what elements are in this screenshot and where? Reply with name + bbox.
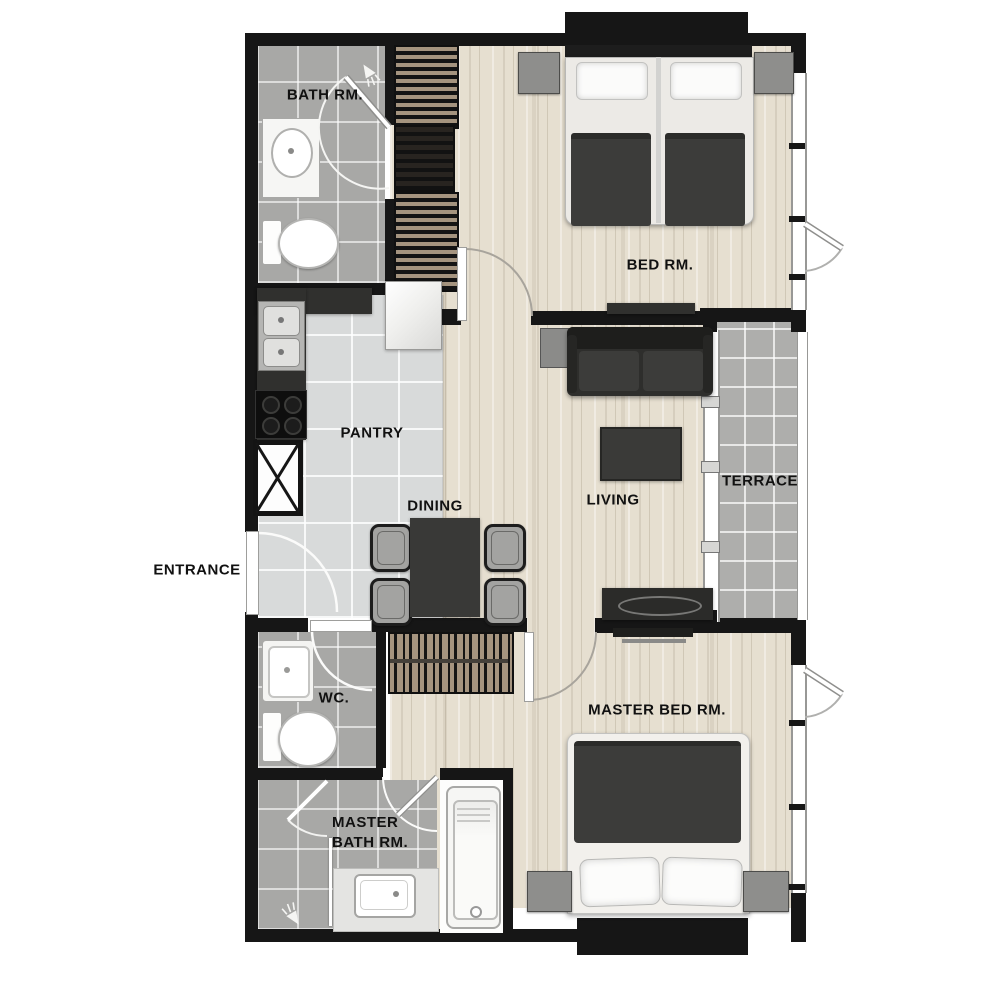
sofa	[567, 327, 713, 396]
wardrobe-lower	[394, 192, 459, 292]
stove-burner	[284, 396, 302, 414]
room-label-terrace: TERRACE	[722, 473, 798, 490]
stove-burner	[262, 396, 280, 414]
slider-joint	[701, 461, 720, 473]
sink-drain	[278, 317, 284, 323]
vanity-sink-inner	[360, 880, 408, 910]
sofa-armrest	[567, 335, 577, 393]
stove-burner	[284, 417, 302, 435]
dining-chair	[484, 578, 526, 626]
slider-joint	[701, 541, 720, 553]
nightstand	[754, 52, 794, 94]
room-label-wc: WC.	[319, 690, 350, 707]
master-pillow	[579, 857, 661, 908]
stove-burner	[262, 417, 280, 435]
wardrobe-rail	[390, 659, 508, 663]
wall-bath-right-upper	[385, 45, 394, 125]
sofa-cushion	[579, 351, 639, 391]
master-window	[791, 665, 807, 893]
nightstand	[518, 52, 560, 94]
bathtub-drain	[470, 906, 482, 918]
bathtub-step-line	[457, 814, 490, 816]
window-tick	[789, 274, 805, 280]
wall-bottom-right-corner	[791, 893, 806, 942]
dining-chair	[484, 524, 526, 572]
bathtub-step-line	[457, 808, 490, 810]
floor-plan: BATH RM. BED RM. PANTRY DINING LIVING TE…	[0, 0, 1000, 1000]
master-pillow	[661, 857, 743, 908]
living-tv	[618, 596, 702, 616]
bed-headboard	[565, 45, 752, 57]
coffee-table	[600, 427, 682, 481]
room-label-bed: BED RM.	[627, 257, 694, 274]
window-tick	[789, 804, 805, 810]
room-label-dining: DINING	[407, 498, 463, 515]
room-label-master-bath-line2: BATH RM.	[332, 833, 408, 853]
twin-bed-divider	[656, 57, 661, 223]
room-label-bath: BATH RM.	[287, 87, 363, 104]
dining-chair	[370, 578, 412, 626]
sink-drain	[278, 349, 284, 355]
bathtub-step-line	[457, 820, 490, 822]
sofa-armrest	[703, 335, 713, 393]
wall-bottom-block	[577, 918, 748, 955]
master-duvet	[574, 741, 741, 843]
window-tick	[789, 884, 805, 890]
room-label-pantry: PANTRY	[341, 425, 404, 442]
bath-basin-drain	[288, 148, 294, 154]
terrace-railing	[797, 332, 808, 620]
room-label-entrance: ENTRANCE	[153, 562, 240, 579]
duvet	[571, 133, 651, 226]
master-door-leaf	[524, 632, 534, 702]
room-label-master-bath: MASTER BATH RM.	[332, 813, 408, 853]
window-tick	[789, 216, 805, 222]
bathtub	[446, 786, 501, 929]
bathtub-inner	[453, 800, 498, 920]
wc-toilet-bowl	[278, 711, 338, 767]
terrace-floor	[715, 322, 797, 620]
side-table	[540, 328, 570, 368]
sofa-cushion	[643, 351, 703, 391]
room-label-living: LIVING	[586, 492, 639, 509]
bedroom-door-leaf	[457, 247, 467, 321]
dining-table	[410, 518, 480, 617]
slider-joint	[701, 396, 720, 408]
duvet	[665, 133, 745, 226]
entrance-door-leaf	[246, 531, 259, 615]
wall-mid-a	[245, 618, 308, 632]
sofa-back	[567, 327, 713, 349]
pillow	[576, 62, 648, 100]
bedroom-tv-console	[607, 303, 695, 314]
bath-toilet-bowl	[278, 218, 339, 269]
window-tick	[789, 143, 805, 149]
wc-door-leaf	[310, 620, 372, 632]
pillow	[670, 62, 742, 100]
balcony-door-swing	[805, 670, 842, 717]
vanity-drain	[393, 891, 399, 897]
master-wardrobe	[388, 632, 514, 694]
nightstand	[527, 871, 572, 912]
wardrobe-middle-dark	[394, 125, 455, 192]
room-label-master-bed: MASTER BED RM.	[588, 702, 726, 719]
dining-chair	[370, 524, 412, 572]
utility-shaft-box	[253, 440, 303, 516]
wall-wc-right	[376, 632, 386, 768]
wc-sink-drain	[284, 667, 290, 673]
wardrobe-upper	[394, 45, 459, 129]
refrigerator	[385, 281, 442, 350]
window-tick	[789, 720, 805, 726]
master-tv	[613, 628, 693, 637]
balcony-door-swing	[805, 224, 842, 271]
wall-tub-niche-right	[503, 768, 513, 933]
nightstand	[743, 871, 789, 912]
wall-top-block	[565, 12, 748, 45]
master-tv-shelf	[622, 639, 686, 643]
room-label-master-bath-line1: MASTER	[332, 813, 408, 833]
wall-masterbath-top	[245, 768, 383, 780]
